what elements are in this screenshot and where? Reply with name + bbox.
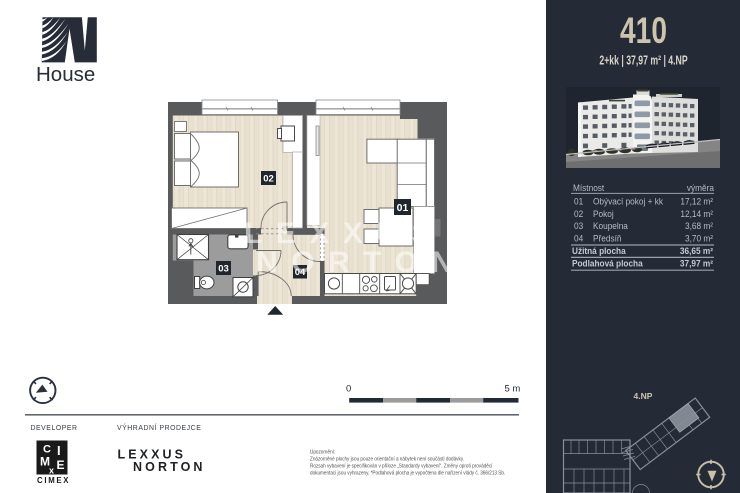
svg-text:VÝHRADNÍ PRODEJCE: VÝHRADNÍ PRODEJCE — [117, 423, 201, 432]
svg-text:I: I — [57, 443, 61, 458]
svg-text:4.NP: 4.NP — [634, 391, 653, 401]
svg-text:výměra: výměra — [687, 183, 714, 193]
svg-text:3,68 m²: 3,68 m² — [685, 221, 713, 231]
svg-text:0: 0 — [346, 384, 351, 395]
svg-text:NORTON: NORTON — [256, 246, 466, 279]
svg-text:2+kk | 37,97 m² | 4.NP: 2+kk | 37,97 m² | 4.NP — [599, 54, 687, 68]
svg-text:36,65 m²: 36,65 m² — [680, 245, 713, 255]
svg-text:17,12 m²: 17,12 m² — [680, 196, 713, 206]
svg-text:DEVELOPER: DEVELOPER — [31, 423, 78, 432]
svg-text:CIMEX: CIMEX — [37, 476, 70, 485]
svg-text:Užitná plocha: Užitná plocha — [572, 245, 626, 255]
svg-text:02: 02 — [263, 174, 274, 185]
svg-text:01: 01 — [397, 202, 409, 214]
svg-text:12,14 m²: 12,14 m² — [680, 208, 713, 218]
svg-text:x: x — [49, 466, 54, 476]
svg-text:410: 410 — [620, 9, 667, 51]
svg-text:Znázorněné plochy jsou pouze o: Znázorněné plochy jsou pouze orientační … — [310, 456, 464, 463]
svg-text:E: E — [57, 458, 65, 472]
svg-text:Koupelna: Koupelna — [593, 221, 628, 231]
svg-text:3,70 m²: 3,70 m² — [685, 233, 713, 243]
svg-text:5 m: 5 m — [505, 384, 521, 395]
svg-text:Obývací pokoj + kk: Obývací pokoj + kk — [593, 196, 664, 206]
svg-text:Místnost: Místnost — [573, 183, 605, 193]
svg-text:03: 03 — [218, 264, 229, 275]
svg-text:Upozornění:: Upozornění: — [310, 449, 335, 456]
svg-text:04: 04 — [574, 233, 583, 243]
svg-text:02: 02 — [574, 208, 583, 218]
svg-text:03: 03 — [574, 221, 583, 231]
svg-text:House: House — [36, 63, 95, 86]
svg-text:dokumentaci jsou vyhrazeny. *P: dokumentaci jsou vyhrazeny. *Podlahová p… — [310, 470, 505, 477]
svg-text:Rozsah vybavení je specifiková: Rozsah vybavení je specifikován v příloz… — [310, 463, 493, 470]
svg-text:Pokoj: Pokoj — [593, 208, 614, 218]
svg-text:Předsíň: Předsíň — [593, 233, 622, 243]
svg-text:37,97 m²: 37,97 m² — [680, 258, 713, 268]
svg-text:NORTON: NORTON — [133, 460, 206, 474]
svg-text:01: 01 — [574, 196, 583, 206]
svg-text:Podlahová plocha: Podlahová plocha — [572, 258, 643, 268]
